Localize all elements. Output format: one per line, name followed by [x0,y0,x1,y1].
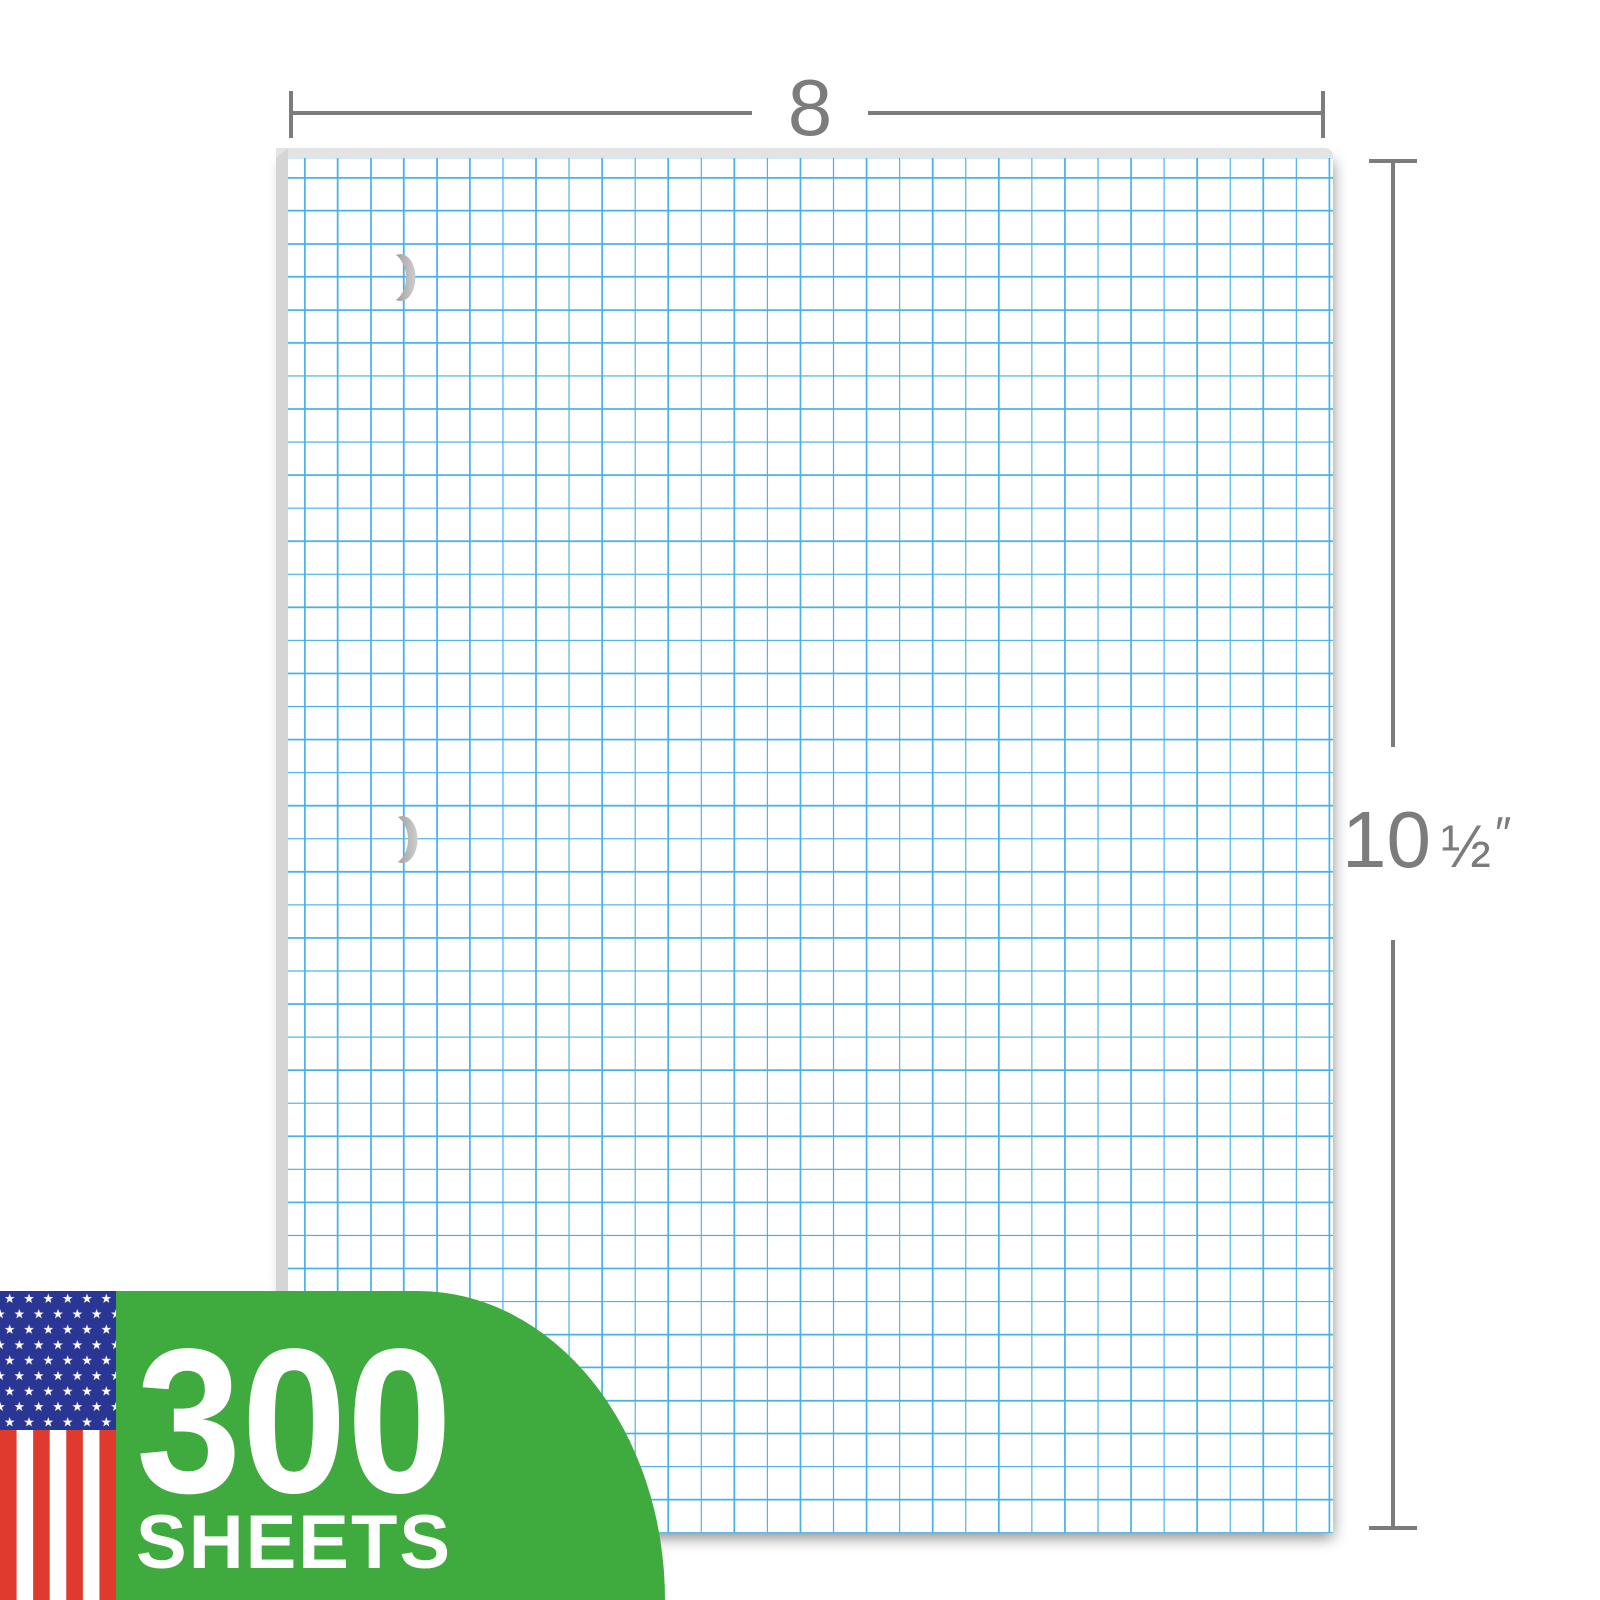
sheet-count-unit: SHEETS [136,1505,452,1581]
height-dim-line-bottom [1391,940,1395,1528]
width-dim-line-right [868,111,1323,115]
width-dim-label: 8 [752,63,868,153]
us-flag-icon [0,1291,116,1600]
sheet-count-value: 300 [136,1318,452,1524]
hole-punch-icon [387,816,421,863]
hole-punch-icon [385,254,419,301]
height-dim-fraction: ½ [1441,813,1491,880]
height-dim-unit: ″ [1495,807,1511,859]
width-dim-tick-right [1321,91,1325,138]
height-dim-line-top [1391,161,1395,747]
height-dim-tick-bottom [1369,1526,1417,1530]
height-dim-label: 10½″ [1342,800,1511,891]
flag-canton [0,1291,116,1430]
width-dim-line-left [293,111,752,115]
product-image-canvas: 8 10½″ 300 SHEETS [0,0,1600,1600]
height-dim-whole: 10 [1342,795,1431,884]
